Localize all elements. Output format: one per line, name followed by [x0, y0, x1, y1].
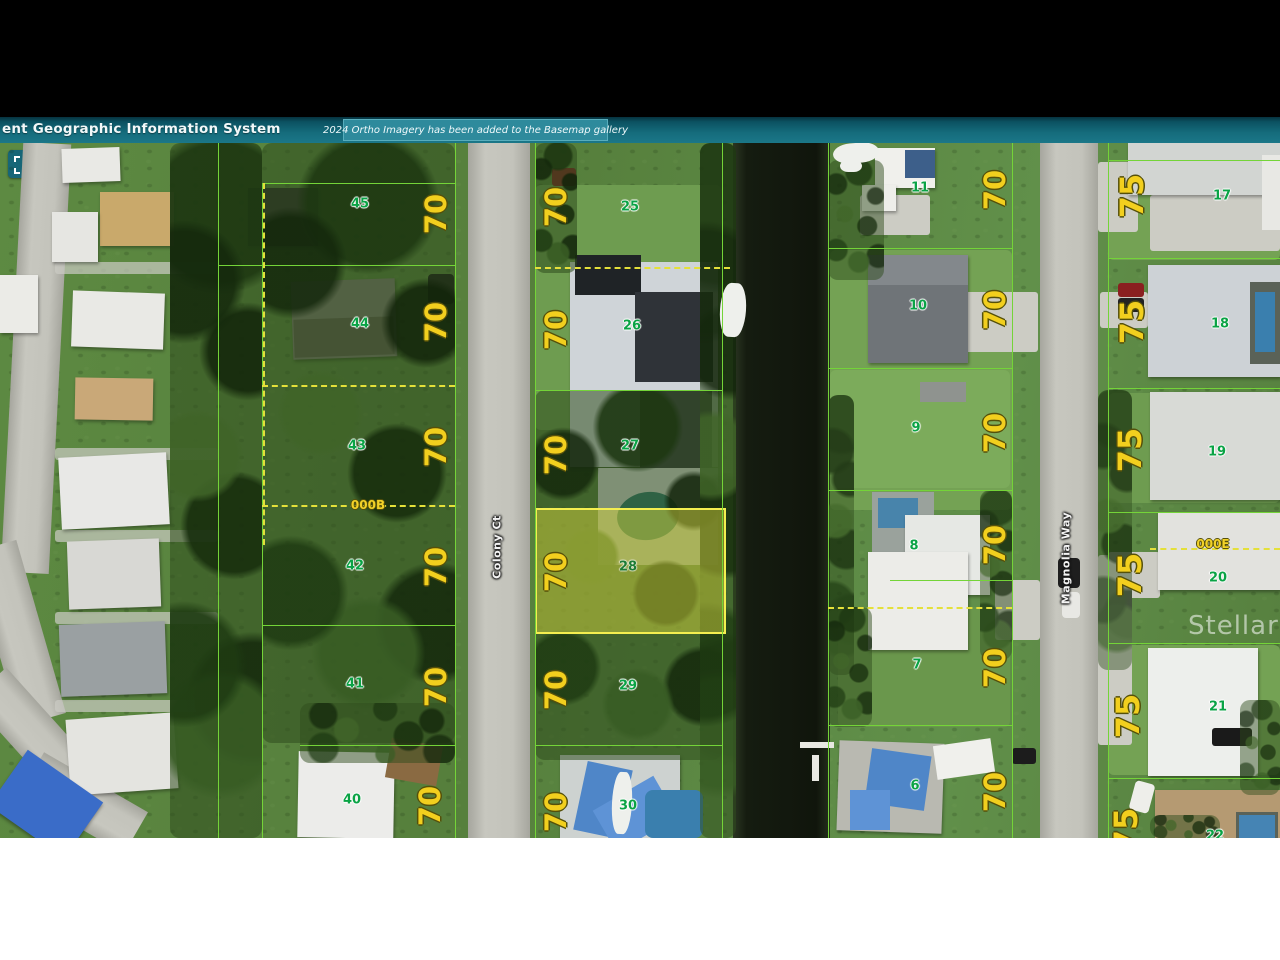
parcel-number-label: 27 [621, 439, 639, 454]
parcel-number-label: 28 [619, 560, 637, 575]
lot-line-dashed [535, 267, 730, 269]
lot-dimension-label: 70 [419, 547, 453, 587]
mobile-home-roof [71, 290, 165, 349]
pool [1255, 292, 1275, 352]
parcel-number-label: 26 [623, 319, 641, 334]
parcel-line [535, 745, 722, 746]
mobile-home-roof [65, 712, 178, 795]
parcel-line [828, 368, 1012, 369]
parcel-number-label: 45 [351, 197, 369, 212]
parcel-line [218, 143, 219, 838]
lot-dimension-label: 70 [419, 302, 453, 342]
lot-line-dashed [263, 183, 265, 545]
parcel-number-label: 20 [1209, 571, 1227, 586]
app-title: ent Geographic Information System [2, 121, 281, 137]
lot-dimension-label: 70 [539, 310, 573, 350]
parcel-number-label: 21 [1209, 700, 1227, 715]
parcel-number-label: 43 [348, 439, 366, 454]
tree-canopy [170, 143, 262, 838]
mobile-home-roof [67, 538, 161, 609]
lot-dimension-label: 70 [539, 552, 573, 592]
lot-dimension-label: 70 [539, 187, 573, 227]
house-roof [868, 552, 968, 650]
lot-dimension-label: 70 [539, 670, 573, 710]
road-magnolia-way [1040, 143, 1098, 838]
house-roof [1262, 155, 1280, 230]
parcel-number-label: 19 [1208, 445, 1226, 460]
app-header: ent Geographic Information System 2024 O… [0, 117, 1280, 143]
parcel-number-label: 41 [346, 677, 364, 692]
map-canvas[interactable]: Stellar MLS 4544434241402526272829301110… [0, 143, 1280, 838]
lot-dimension-label: 75 [1113, 174, 1151, 219]
lot-dimension-label: 70 [978, 525, 1012, 565]
watermark: Stellar MLS [1188, 611, 1280, 641]
parcel-number-label: 10 [909, 299, 927, 314]
parcel-number-label: 30 [619, 799, 637, 814]
parcel-number-label: 11 [911, 181, 929, 196]
gis-application-window: ent Geographic Information System 2024 O… [0, 0, 1280, 960]
parcel-line [535, 390, 722, 391]
parcel-line [300, 745, 455, 746]
lot-dimension-label: 70 [978, 290, 1012, 330]
lot-dimension-label: 75 [1109, 694, 1147, 739]
lot-line-label: 000B [351, 498, 385, 512]
tree-canopy [828, 607, 872, 727]
parcel-line [890, 580, 1012, 581]
shed-roof [920, 382, 966, 402]
canal-water [733, 143, 830, 838]
lot-dimension-label: 70 [419, 667, 453, 707]
lot-line-dashed [262, 385, 455, 387]
mobile-home-roof [59, 621, 167, 697]
lot-line-label: 000E [1196, 537, 1229, 551]
parcel-line [455, 143, 456, 838]
parcel-line [1108, 160, 1280, 161]
lot-dimension-label: 70 [413, 786, 447, 826]
parcel-number-label: 42 [346, 559, 364, 574]
parcel-number-label: 18 [1211, 317, 1229, 332]
parcel-number-label: 29 [619, 679, 637, 694]
lot-dimension-label: 75 [1111, 428, 1149, 473]
tree-canopy [700, 143, 736, 838]
street-name-label: Colony Ct [491, 515, 504, 579]
tree-canopy [300, 703, 455, 763]
pool [1236, 812, 1278, 838]
parcel-number-label: 40 [343, 793, 361, 808]
parcel-number-label: 8 [909, 539, 918, 554]
parcel-line [828, 490, 1012, 491]
roof-dark-section [575, 255, 641, 295]
tree-canopy [980, 490, 1012, 660]
lot-dimension-label: 70 [539, 435, 573, 475]
car [1012, 748, 1036, 764]
parcel-line [1108, 258, 1280, 259]
parcel-number-label: 22 [1206, 829, 1224, 839]
mobile-home-roof [58, 452, 170, 530]
parcel-line [722, 143, 723, 838]
lot-line-dashed [828, 607, 1012, 609]
parcel-line [828, 725, 1012, 726]
lot-dimension-label: 70 [978, 772, 1012, 812]
lot-dimension-label: 70 [978, 648, 1012, 688]
parcel-line [262, 183, 455, 184]
boat [840, 160, 862, 172]
parcel-line [262, 625, 455, 626]
lot-dimension-label: 75 [1113, 300, 1151, 345]
pool [645, 790, 703, 838]
tree-canopy [1240, 700, 1280, 795]
top-letterbox [0, 0, 1280, 117]
parcel-number-label: 44 [351, 317, 369, 332]
lot-dimension-label: 70 [539, 792, 573, 832]
parcel-line [828, 248, 1012, 249]
lot-dimension-label: 70 [419, 427, 453, 467]
parcel-line [1108, 643, 1280, 644]
parcel-number-label: 7 [912, 658, 921, 673]
mobile-home-roof [0, 275, 38, 333]
bottom-whitespace [0, 838, 1280, 960]
mobile-home-roof [52, 212, 98, 262]
parcel-line [218, 265, 455, 266]
parcel-line [1108, 512, 1280, 513]
lot-dimension-label: 75 [1107, 808, 1145, 838]
blue-tarp [850, 790, 890, 830]
mobile-home-roof [100, 192, 174, 246]
lot-dimension-label: 70 [419, 194, 453, 234]
parcel-line [1108, 778, 1280, 779]
lot-dimension-label: 70 [978, 413, 1012, 453]
mobile-home-roof [75, 377, 154, 420]
lot-dimension-label: 70 [978, 170, 1012, 210]
lot-dimension-label: 75 [1111, 553, 1149, 598]
dock [812, 755, 819, 781]
parcel-number-label: 9 [911, 421, 920, 436]
street-name-label: Magnolia Way [1060, 512, 1073, 604]
parcel-line [535, 143, 536, 838]
tree-canopy [828, 160, 884, 280]
road-colony-ct [468, 143, 530, 838]
parcel-number-label: 17 [1213, 189, 1231, 204]
car [1118, 283, 1144, 297]
notification-banner: 2024 Ortho Imagery has been added to the… [343, 119, 608, 141]
mobile-home-roof [61, 147, 120, 183]
parcel-number-label: 6 [910, 779, 919, 794]
parcel-line [1012, 143, 1013, 838]
parcel-line [1108, 388, 1280, 389]
blue-tarp [905, 150, 935, 178]
parcel-number-label: 25 [621, 200, 639, 215]
